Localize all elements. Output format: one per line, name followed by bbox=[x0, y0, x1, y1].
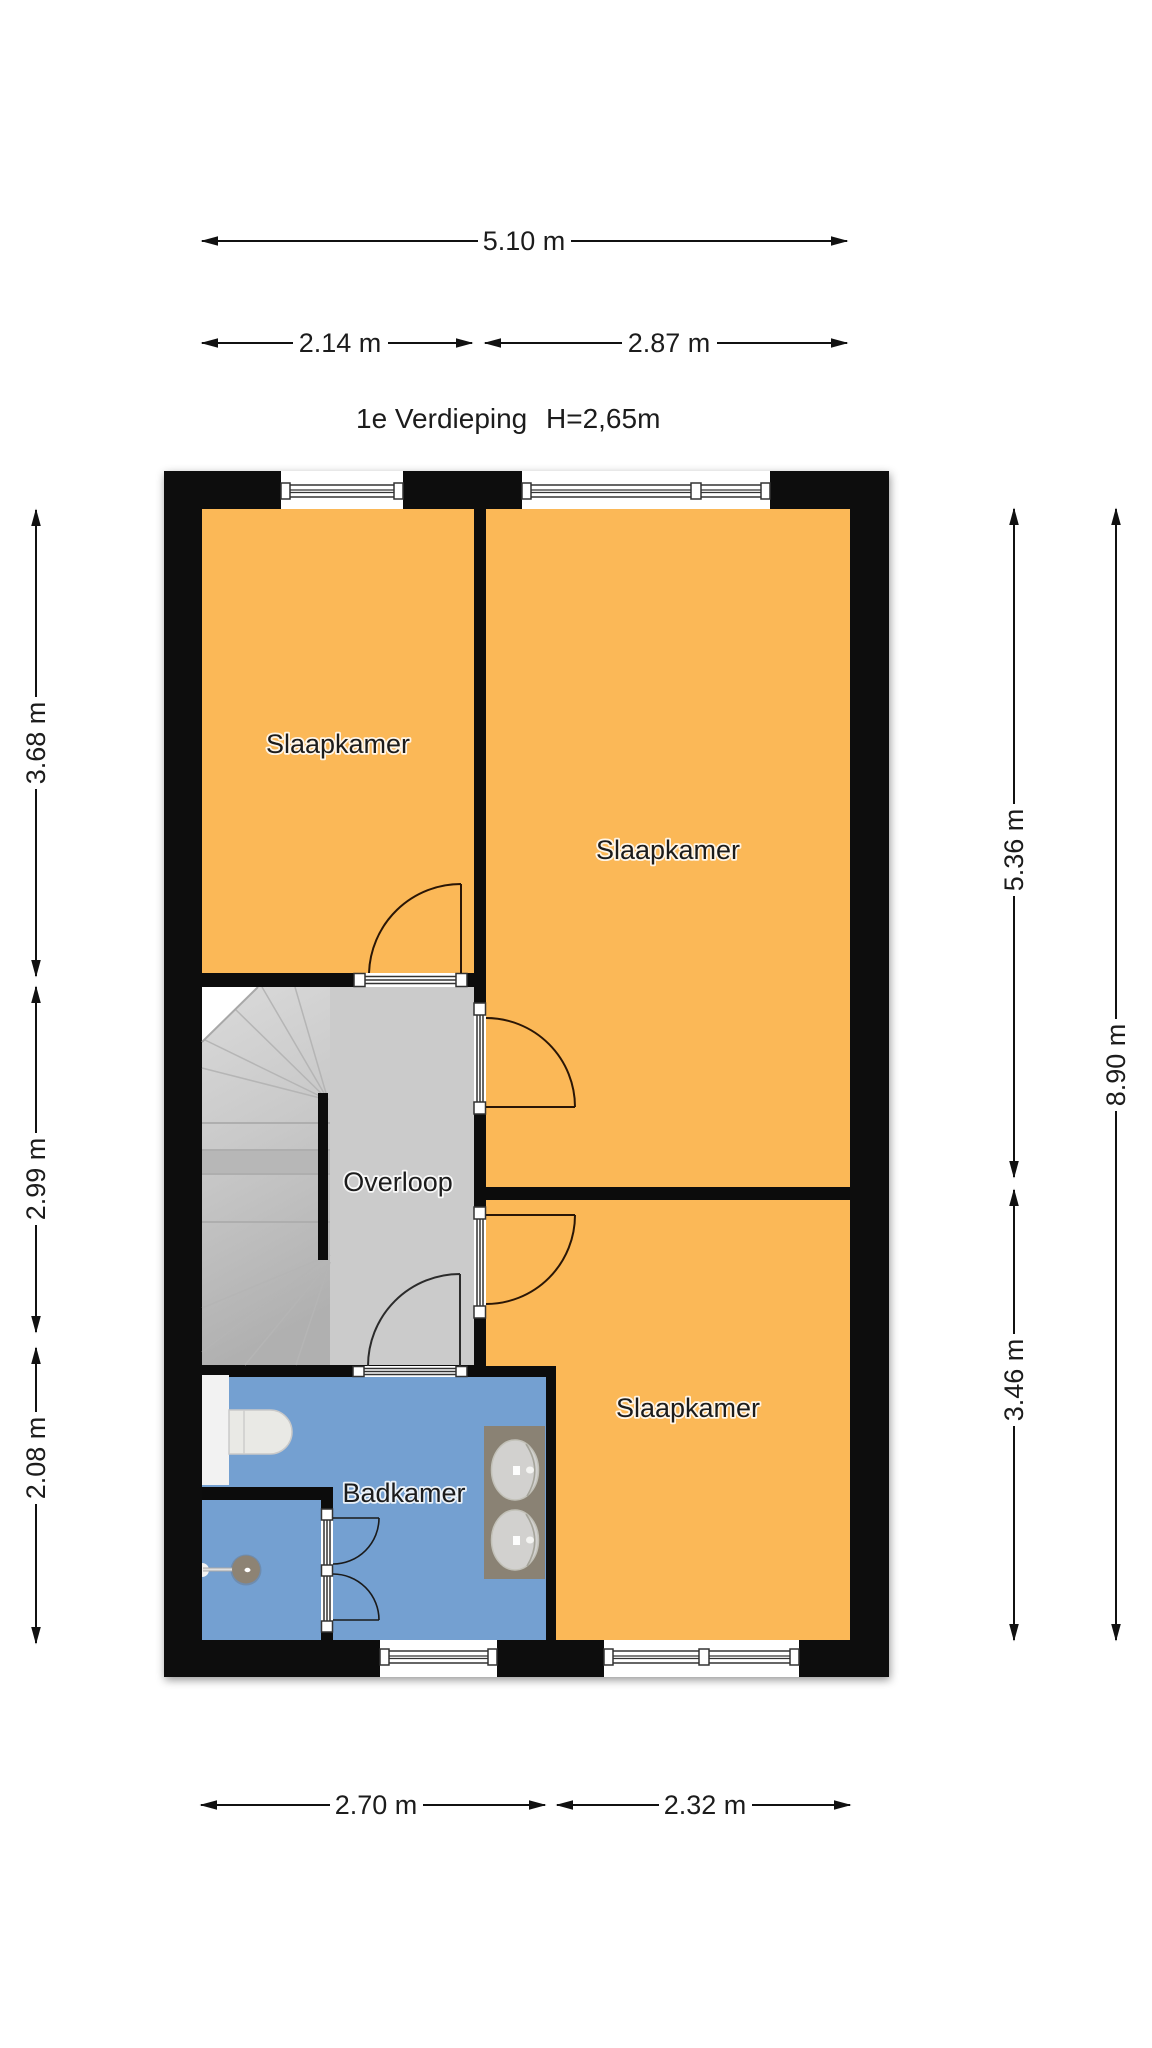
svg-text:2.08 m: 2.08 m bbox=[21, 1417, 51, 1500]
svg-text:5.10 m: 5.10 m bbox=[483, 226, 566, 256]
svg-text:3.68 m: 3.68 m bbox=[21, 702, 51, 785]
svg-text:Overloop: Overloop bbox=[343, 1167, 453, 1197]
svg-text:8.90 m: 8.90 m bbox=[1101, 1024, 1131, 1107]
svg-text:2.99 m: 2.99 m bbox=[21, 1138, 51, 1221]
svg-text:2.32 m: 2.32 m bbox=[664, 1790, 747, 1820]
svg-text:Slaapkamer: Slaapkamer bbox=[596, 835, 740, 865]
svg-text:3.46 m: 3.46 m bbox=[999, 1339, 1029, 1422]
svg-text:Slaapkamer: Slaapkamer bbox=[266, 729, 410, 759]
svg-text:Badkamer: Badkamer bbox=[342, 1478, 465, 1508]
svg-text:2.14 m: 2.14 m bbox=[299, 328, 382, 358]
svg-text:2.87 m: 2.87 m bbox=[628, 328, 711, 358]
svg-text:1e Verdieping: 1e Verdieping bbox=[356, 403, 527, 434]
svg-text:5.36 m: 5.36 m bbox=[999, 809, 1029, 892]
svg-text:Slaapkamer: Slaapkamer bbox=[616, 1393, 760, 1423]
svg-text:H=2,65m: H=2,65m bbox=[546, 403, 660, 434]
svg-text:2.70 m: 2.70 m bbox=[335, 1790, 418, 1820]
